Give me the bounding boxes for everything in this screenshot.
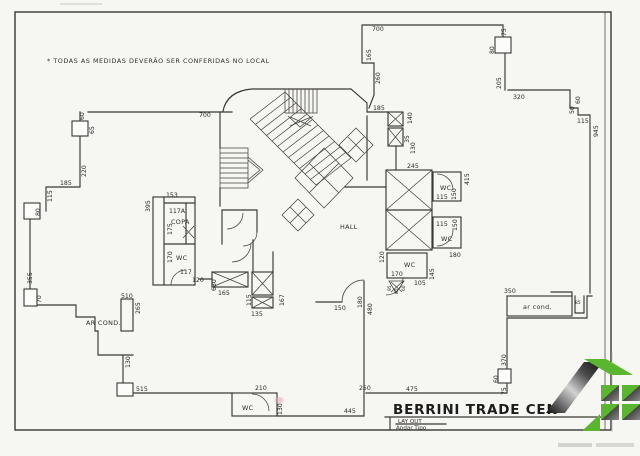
dim-label: 170 — [167, 251, 174, 263]
dim-label: 80 — [35, 208, 42, 216]
dim-label: 95 — [387, 285, 393, 291]
dim-label: 250 — [359, 385, 371, 392]
elevator-shafts — [386, 112, 432, 250]
dim-label: 630 — [211, 279, 218, 291]
drawing-subtitle-2: Andar Tipo — [396, 426, 427, 432]
dim-label: 370 — [501, 354, 508, 366]
dim-label: 135 — [251, 311, 263, 318]
dim-label: 185 — [60, 180, 72, 187]
dim-label: 115 — [246, 294, 253, 306]
room-label-ar-cond: AR COND. — [86, 319, 121, 327]
dim-label: 945 — [593, 125, 600, 137]
dim-label: 115 — [47, 190, 54, 202]
dim-label: 153 — [166, 192, 178, 199]
dim-label: 700 — [199, 112, 211, 119]
dim-label: 130 — [277, 403, 284, 415]
dim-label: 60 — [79, 112, 86, 120]
ar-cond-rooms — [121, 292, 584, 331]
dim-label: 210 — [255, 385, 267, 392]
dim-label: 150 — [452, 219, 459, 231]
dim-label: 415 — [464, 173, 471, 185]
dim-label: 35 — [404, 135, 411, 143]
dim-label: 130 — [125, 356, 132, 368]
dim-label: 220 — [81, 165, 88, 177]
dim-label: 115 — [577, 118, 589, 125]
stair-core — [220, 89, 388, 262]
logo-window-grid — [601, 385, 640, 420]
dim-label: 350 — [504, 288, 516, 295]
logo-caption-smudge — [558, 443, 634, 447]
dim-label: 167 — [279, 294, 286, 306]
room-label-wc: WC — [242, 404, 254, 412]
scan-smudge — [275, 397, 284, 403]
dim-label: 180 — [357, 296, 364, 308]
dim-label: 115 — [436, 221, 448, 228]
dim-label: 60 — [575, 96, 582, 104]
dim-label: 85 — [575, 300, 581, 306]
dim-label: 130 — [410, 142, 417, 154]
room-label-hall: HALL — [340, 223, 358, 231]
dim-label: 165 — [366, 49, 373, 61]
room-label-wc: WC — [441, 235, 453, 243]
dim-label: 75 — [501, 387, 508, 395]
dim-label: 75 — [501, 28, 508, 36]
dim-label: 70 — [36, 295, 43, 303]
column-pillar — [495, 37, 511, 53]
column-pillar — [117, 383, 133, 396]
sheet-frame — [15, 4, 611, 430]
dim-label: 700 — [372, 26, 384, 33]
dim-label: 205 — [496, 77, 503, 89]
dim-label: 117 — [180, 269, 192, 276]
dim-label: 185 — [373, 105, 385, 112]
dim-label: 150 — [334, 305, 346, 312]
dim-label: 140 — [407, 112, 414, 124]
dim-label: 180 — [449, 252, 461, 259]
dim-label: 60 — [493, 375, 500, 383]
dim-label: 145 — [429, 268, 436, 280]
room-label-wc: WC — [404, 261, 416, 269]
room-label-wc: WC — [440, 184, 452, 192]
dim-label: 60 — [401, 285, 407, 291]
dim-label: 320 — [513, 94, 525, 101]
dim-label: 245 — [407, 163, 419, 170]
room-label-wc: WC — [176, 254, 188, 262]
dim-label: 80 — [489, 46, 496, 54]
dim-label: 395 — [145, 200, 152, 212]
dim-label: 260 — [375, 72, 382, 84]
dim-label: 475 — [406, 386, 418, 393]
dim-label: 150 — [451, 188, 458, 200]
drawing-title: BERRINI TRADE CEN — [393, 402, 559, 418]
floorplan-canvas: * TODAS AS MEDIDAS DEVERÃO SER CONFERIDA… — [0, 0, 640, 456]
dim-label: 445 — [344, 408, 356, 415]
dim-label: 355 — [27, 272, 34, 284]
scanned-floorplan-page: * TODAS AS MEDIDAS DEVERÃO SER CONFERIDA… — [0, 0, 640, 456]
dim-label: 120 — [192, 277, 204, 284]
dim-label: 165 — [218, 290, 230, 297]
dim-label: 175 — [167, 223, 174, 235]
dim-label: 120 — [379, 251, 386, 263]
company-logo — [546, 352, 640, 447]
dim-label: 480 — [367, 303, 374, 315]
column-pillar — [72, 121, 88, 136]
dim-label: 515 — [136, 386, 148, 393]
dim-label: 170 — [391, 271, 403, 278]
dim-label: 117A — [169, 208, 186, 215]
dim-label: 510 — [121, 293, 133, 300]
measurement-note: * TODAS AS MEDIDAS DEVERÃO SER CONFERIDA… — [47, 56, 270, 65]
dim-label: 105 — [414, 280, 426, 287]
dimension-labels: 7006065220185115803557070016526075802053… — [27, 26, 600, 415]
dim-label: 85 — [394, 288, 400, 294]
bottom-wc-room — [232, 393, 284, 416]
dim-label: 50 — [569, 106, 576, 114]
dim-label: 65 — [89, 126, 96, 134]
drawing-subtitle: LAY OUT — [398, 419, 422, 425]
room-label-ar-cond-2: ar cond. — [523, 303, 552, 311]
dim-label: 265 — [135, 302, 142, 314]
dim-label: 115 — [436, 194, 448, 201]
